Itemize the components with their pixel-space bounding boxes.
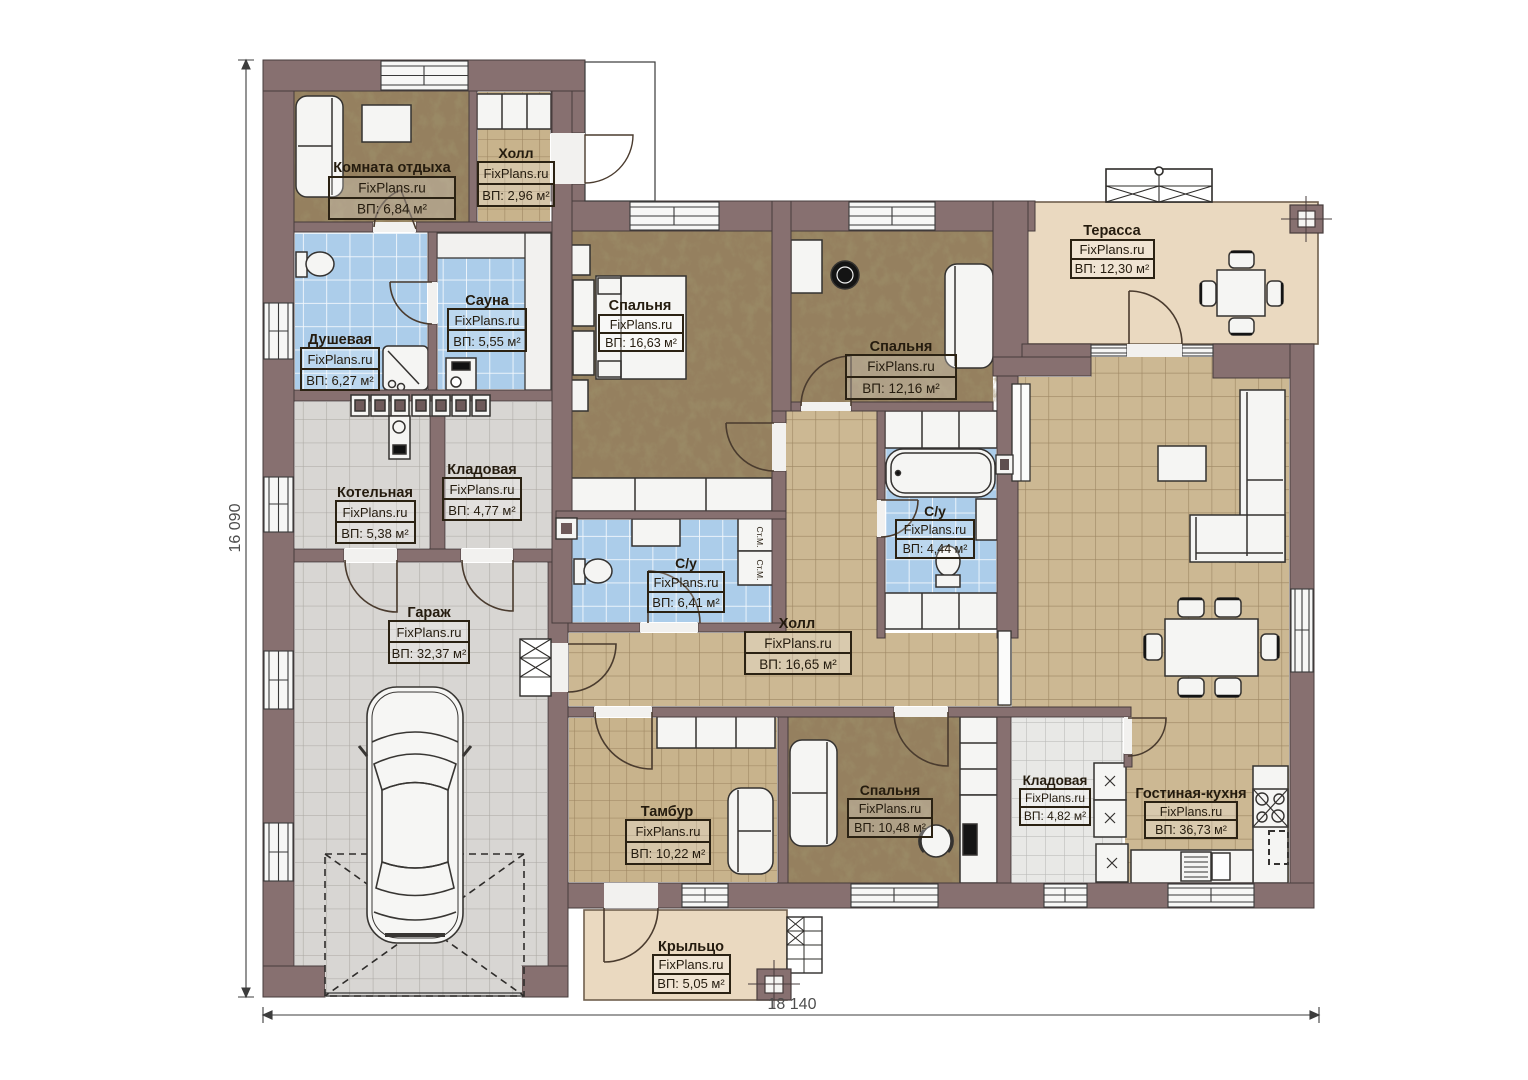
svg-text:18 140: 18 140	[768, 996, 817, 1013]
svg-text:ВП: 6,84 м²: ВП: 6,84 м²	[357, 202, 428, 217]
svg-text:FixPlans.ru: FixPlans.ru	[449, 482, 514, 497]
svg-text:FixPlans.ru: FixPlans.ru	[764, 636, 832, 651]
svg-text:FixPlans.ru: FixPlans.ru	[653, 575, 718, 590]
svg-text:Спальня: Спальня	[609, 298, 672, 314]
svg-text:ВП: 32,37 м²: ВП: 32,37 м²	[392, 646, 467, 661]
svg-text:FixPlans.ru: FixPlans.ru	[635, 824, 700, 839]
svg-text:ВП: 5,38 м²: ВП: 5,38 м²	[341, 526, 409, 541]
svg-text:ВП: 6,41 м²: ВП: 6,41 м²	[652, 595, 720, 610]
svg-text:ВП: 5,55 м²: ВП: 5,55 м²	[453, 334, 521, 349]
svg-text:ВП: 10,48 м²: ВП: 10,48 м²	[854, 821, 926, 835]
svg-text:Крыльцо: Крыльцо	[658, 939, 724, 955]
svg-text:ВП: 16,63 м²: ВП: 16,63 м²	[605, 336, 677, 350]
svg-text:FixPlans.ru: FixPlans.ru	[859, 802, 922, 816]
svg-text:Холл: Холл	[779, 616, 815, 632]
svg-text:ВП: 16,65 м²: ВП: 16,65 м²	[759, 657, 837, 672]
svg-text:FixPlans.ru: FixPlans.ru	[483, 166, 548, 181]
svg-text:ВП: 12,30 м²: ВП: 12,30 м²	[1075, 261, 1150, 276]
svg-text:Гараж: Гараж	[407, 605, 451, 621]
svg-text:FixPlans.ru: FixPlans.ru	[1160, 805, 1223, 819]
svg-text:FixPlans.ru: FixPlans.ru	[904, 523, 967, 537]
svg-text:FixPlans.ru: FixPlans.ru	[1025, 791, 1085, 805]
svg-text:FixPlans.ru: FixPlans.ru	[1079, 242, 1144, 257]
svg-text:ВП: 4,44 м²: ВП: 4,44 м²	[903, 542, 968, 556]
svg-text:FixPlans.ru: FixPlans.ru	[454, 313, 519, 328]
svg-text:Ст.М.: Ст.М.	[755, 560, 765, 581]
svg-text:FixPlans.ru: FixPlans.ru	[610, 318, 673, 332]
svg-text:FixPlans.ru: FixPlans.ru	[867, 359, 935, 374]
svg-text:FixPlans.ru: FixPlans.ru	[307, 352, 372, 367]
svg-text:ВП: 2,96 м²: ВП: 2,96 м²	[482, 188, 550, 203]
svg-text:ВП: 6,27 м²: ВП: 6,27 м²	[306, 373, 374, 388]
svg-text:ВП: 36,73 м²: ВП: 36,73 м²	[1155, 823, 1227, 837]
svg-text:Кладовая: Кладовая	[447, 462, 516, 478]
svg-text:Терасса: Терасса	[1083, 223, 1141, 239]
svg-text:Котельная: Котельная	[337, 485, 413, 501]
svg-text:Спальня: Спальня	[860, 782, 920, 798]
svg-text:ВП: 12,16 м²: ВП: 12,16 м²	[862, 381, 940, 396]
svg-text:Тамбур: Тамбур	[641, 804, 694, 820]
svg-text:Спальня: Спальня	[870, 339, 933, 355]
svg-text:С/у: С/у	[675, 555, 697, 571]
svg-text:Сауна: Сауна	[465, 293, 510, 309]
svg-text:FixPlans.ru: FixPlans.ru	[358, 181, 426, 196]
svg-text:Холл: Холл	[498, 145, 533, 161]
svg-text:FixPlans.ru: FixPlans.ru	[396, 625, 461, 640]
svg-text:С/у: С/у	[924, 503, 946, 519]
svg-text:ВП: 4,77 м²: ВП: 4,77 м²	[448, 503, 516, 518]
svg-text:Душевая: Душевая	[308, 332, 372, 348]
svg-text:16 090: 16 090	[227, 503, 244, 552]
svg-text:ВП: 10,22 м²: ВП: 10,22 м²	[631, 846, 706, 861]
svg-text:ВП: 4,82 м²: ВП: 4,82 м²	[1024, 809, 1086, 823]
svg-text:Гостиная-кухня: Гостиная-кухня	[1135, 786, 1246, 802]
svg-text:FixPlans.ru: FixPlans.ru	[658, 957, 723, 972]
svg-text:ВП: 5,05 м²: ВП: 5,05 м²	[657, 976, 725, 991]
svg-text:Кладовая: Кладовая	[1023, 773, 1088, 788]
svg-text:FixPlans.ru: FixPlans.ru	[342, 505, 407, 520]
svg-text:Ст.М.: Ст.М.	[755, 527, 765, 548]
svg-text:Комната отдыха: Комната отдыха	[333, 160, 451, 176]
